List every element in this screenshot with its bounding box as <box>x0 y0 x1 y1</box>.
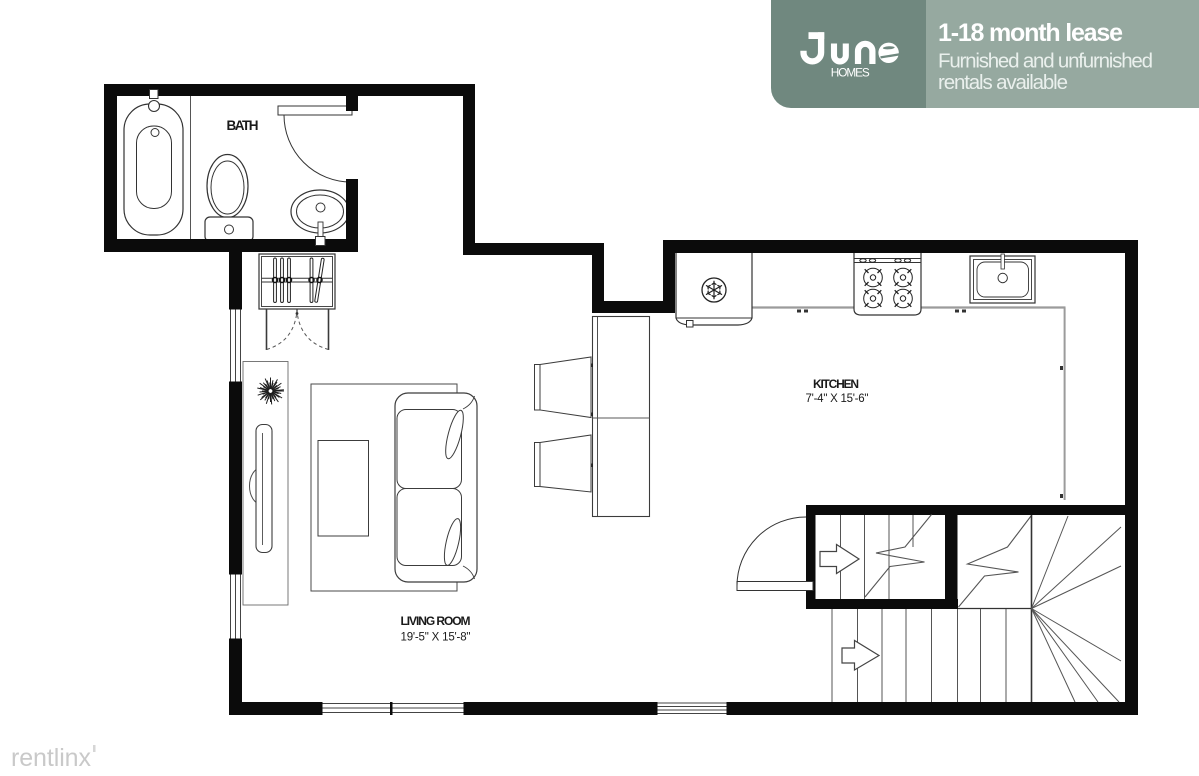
svg-text:KITCHEN: KITCHEN <box>813 377 859 391</box>
svg-text:1-18 month lease: 1-18 month lease <box>938 19 1123 47</box>
svg-text:19'-5" X 15'-8": 19'-5" X 15'-8" <box>401 632 471 644</box>
svg-text:LIVING ROOM: LIVING ROOM <box>401 614 471 628</box>
svg-text:BATH: BATH <box>227 118 259 133</box>
svg-text:Furnished and unfurnished: Furnished and unfurnished <box>938 50 1153 73</box>
svg-text:rentlinx: rentlinx <box>11 744 92 772</box>
svg-text:rentals available: rentals available <box>938 71 1068 94</box>
svg-text:HOMES: HOMES <box>831 66 871 80</box>
svg-text:7'-4" X 15'-6": 7'-4" X 15'-6" <box>806 393 869 405</box>
